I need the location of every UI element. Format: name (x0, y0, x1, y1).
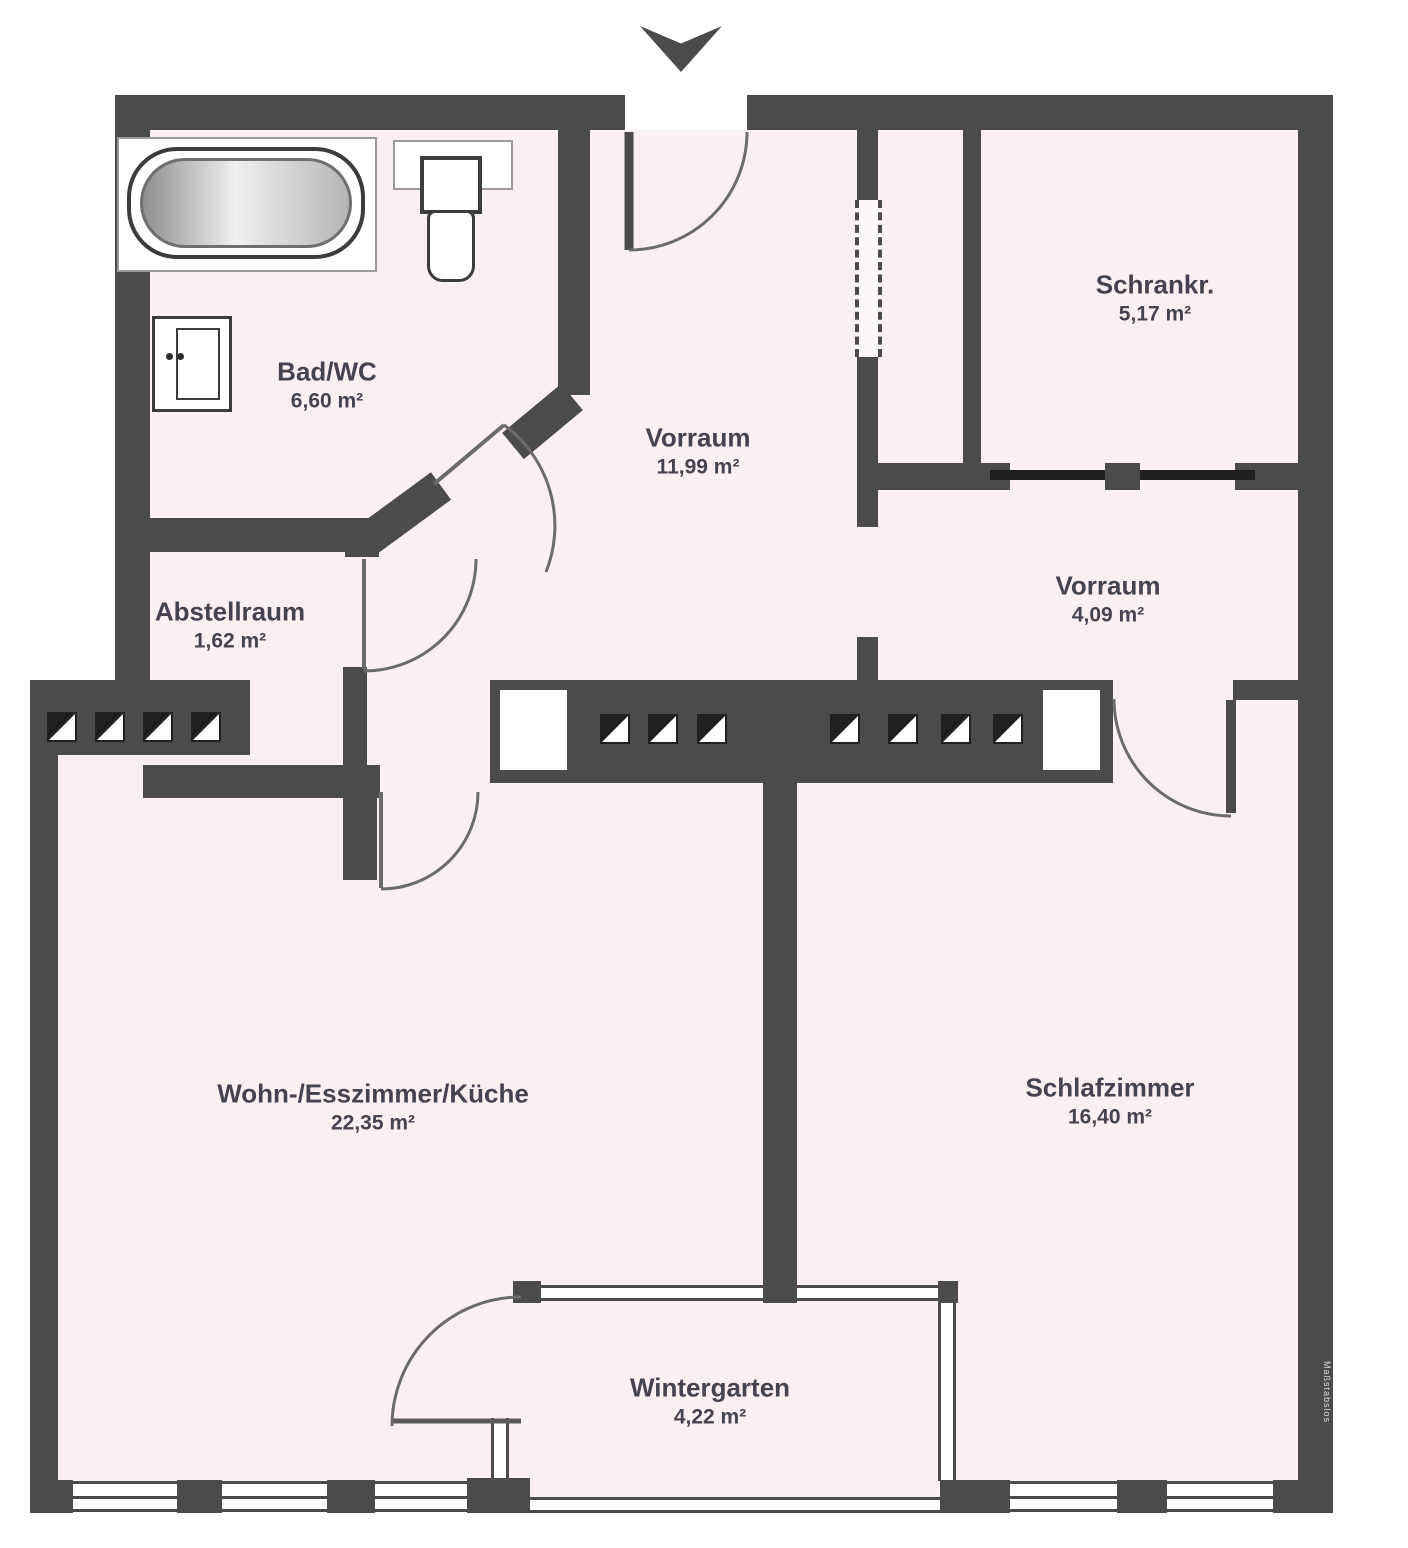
wall-diagonal-lower (366, 486, 441, 541)
floor-plan: Bad/WC6,60 m² Vorraum11,99 m² Schrankr.5… (0, 0, 1408, 1548)
watermark: Maßstabslos (1302, 1344, 1332, 1440)
room-label-vorraum-small: Vorraum4,09 m² (1056, 571, 1161, 628)
living-door-swing (381, 792, 478, 889)
entrance-door-swing (629, 132, 747, 250)
bedroom-door-swing (1114, 699, 1231, 816)
room-label-wintergarten: Wintergarten4,22 m² (630, 1373, 790, 1430)
room-label-schrankraum: Schrankr.5,17 m² (1096, 270, 1215, 327)
doors-and-diagonals (0, 0, 1408, 1548)
room-label-wohnzimmer: Wohn-/Esszimmer/Küche22,35 m² (217, 1079, 529, 1136)
room-label-abstellraum: Abstellraum1,62 m² (155, 597, 305, 654)
room-label-bad-wc: Bad/WC6,60 m² (277, 357, 377, 414)
room-label-vorraum-main: Vorraum11,99 m² (646, 423, 751, 480)
wintergarten-door-swing (392, 1297, 521, 1426)
bath-door-leaf (434, 425, 504, 484)
storage-door-swing (364, 559, 476, 671)
room-label-schlafzimmer: Schlafzimmer16,40 m² (1025, 1073, 1194, 1130)
